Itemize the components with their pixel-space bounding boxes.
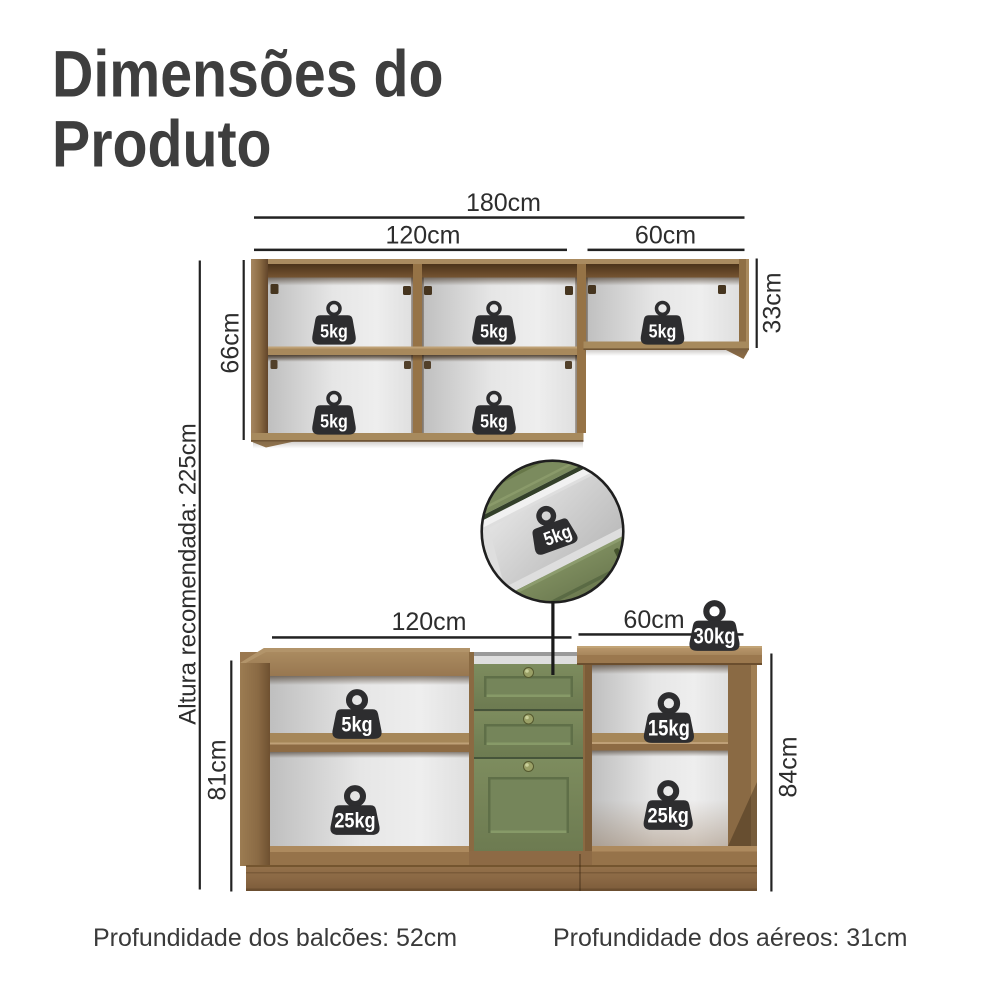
svg-text:5kg: 5kg <box>341 713 372 737</box>
svg-text:180cm: 180cm <box>466 189 541 217</box>
svg-text:Profundidade dos aéreos: 31cm: Profundidade dos aéreos: 31cm <box>553 924 907 952</box>
svg-text:Altura recomendada: 225cm: Altura recomendada: 225cm <box>175 423 202 725</box>
svg-text:60cm: 60cm <box>623 606 684 634</box>
svg-text:Dimensões do: Dimensões do <box>52 38 443 112</box>
svg-text:5kg: 5kg <box>320 410 348 432</box>
svg-text:5kg: 5kg <box>480 410 508 432</box>
svg-text:60cm: 60cm <box>635 222 696 250</box>
svg-text:Produto: Produto <box>52 108 272 182</box>
svg-text:84cm: 84cm <box>774 736 802 797</box>
svg-text:81cm: 81cm <box>203 739 231 800</box>
svg-text:120cm: 120cm <box>391 608 466 636</box>
svg-text:25kg: 25kg <box>334 809 375 833</box>
svg-text:5kg: 5kg <box>649 320 677 342</box>
svg-text:5kg: 5kg <box>480 320 508 342</box>
svg-text:30kg: 30kg <box>693 625 735 649</box>
svg-text:25kg: 25kg <box>648 804 689 828</box>
svg-text:33cm: 33cm <box>759 272 787 333</box>
svg-text:120cm: 120cm <box>385 222 460 250</box>
svg-text:66cm: 66cm <box>216 312 244 373</box>
svg-text:15kg: 15kg <box>648 717 690 741</box>
svg-text:Profundidade dos balcões: 52cm: Profundidade dos balcões: 52cm <box>93 924 457 952</box>
svg-text:5kg: 5kg <box>320 320 348 342</box>
